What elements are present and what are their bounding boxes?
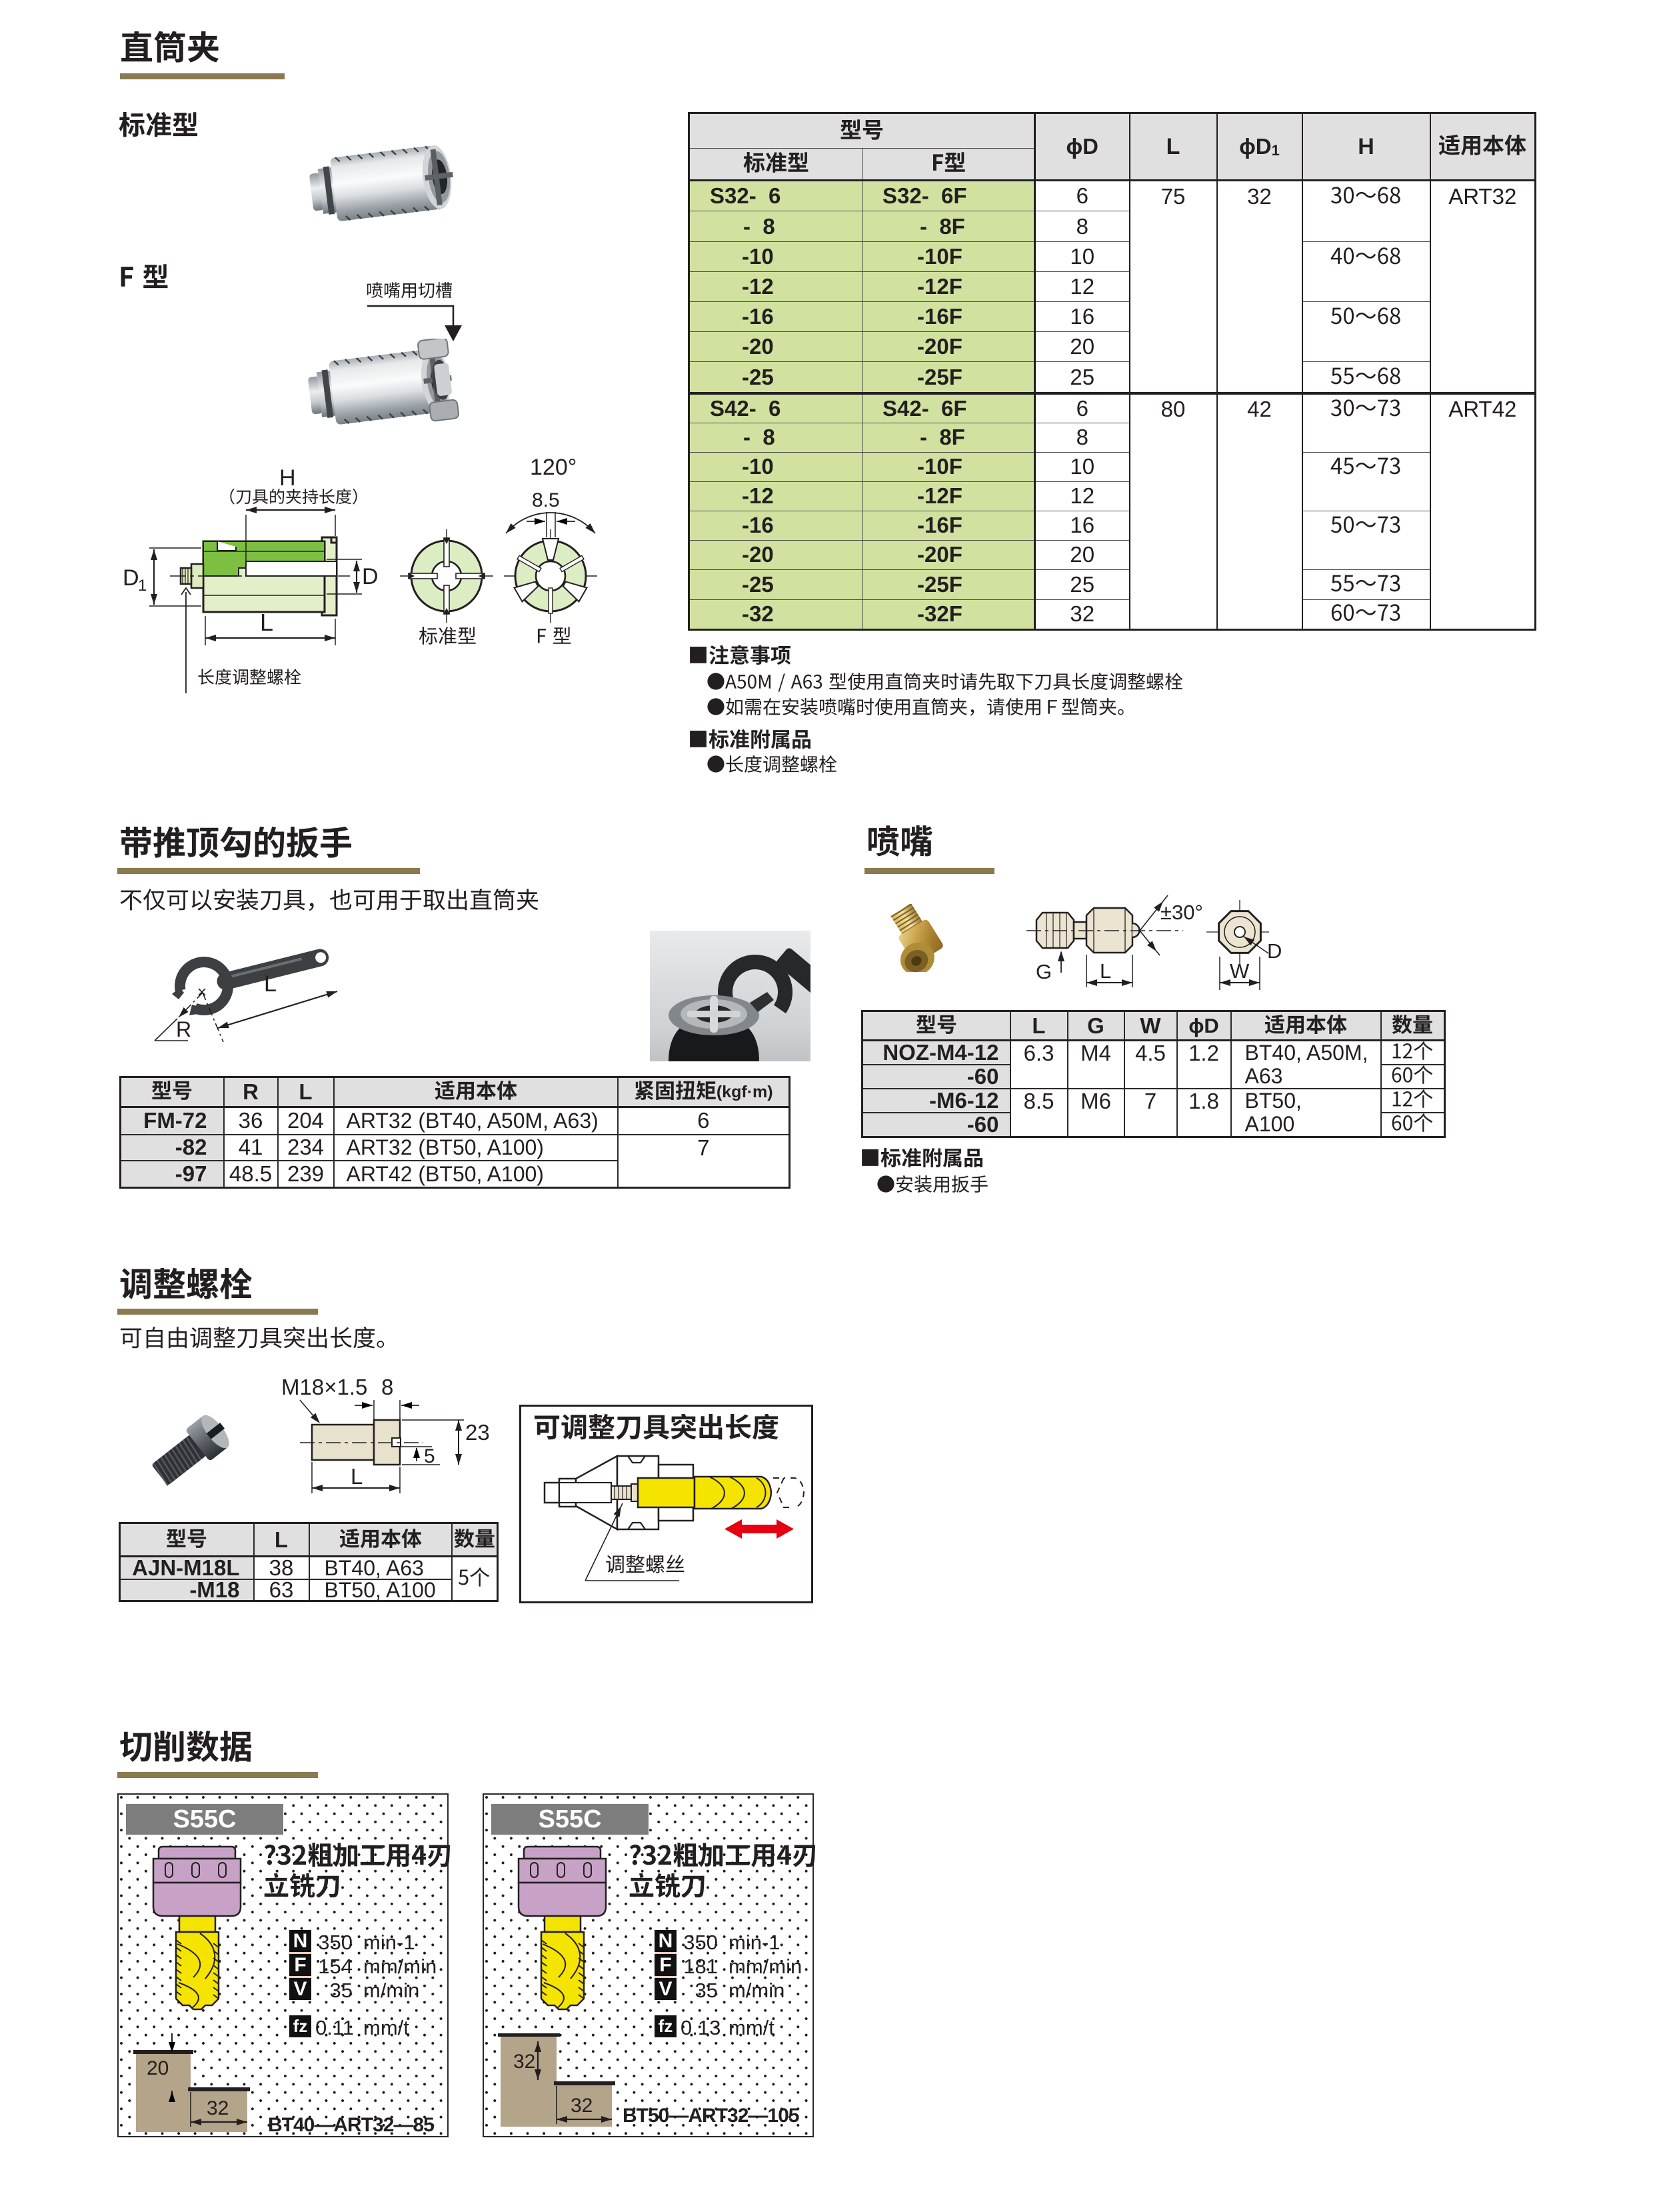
svg-text:8.5: 8.5: [532, 489, 560, 511]
svg-text:32: 32: [513, 2051, 535, 2073]
svg-text:L: L: [351, 1464, 363, 1489]
svg-text:W: W: [1230, 959, 1250, 983]
svg-text:L: L: [1100, 959, 1111, 983]
svg-text:5: 5: [424, 1445, 435, 1467]
svg-text:L: L: [264, 971, 277, 997]
svg-text:±30°: ±30°: [1160, 901, 1203, 924]
svg-text:R: R: [176, 1017, 191, 1041]
svg-text:M18×1.5: M18×1.5: [281, 1375, 367, 1399]
svg-text:8: 8: [381, 1375, 393, 1399]
svg-text:20: 20: [147, 2057, 169, 2079]
svg-text:H: H: [279, 465, 296, 491]
svg-text:D: D: [1267, 939, 1282, 963]
svg-text:32: 32: [571, 2095, 593, 2117]
svg-text:23: 23: [465, 1420, 490, 1445]
svg-text:G: G: [1036, 960, 1052, 983]
svg-text:D: D: [362, 564, 379, 589]
svg-text:D: D: [123, 565, 139, 591]
svg-text:32: 32: [207, 2097, 229, 2119]
svg-text:1: 1: [138, 577, 147, 595]
svg-text:120°: 120°: [530, 455, 577, 480]
svg-text:L: L: [260, 609, 273, 636]
